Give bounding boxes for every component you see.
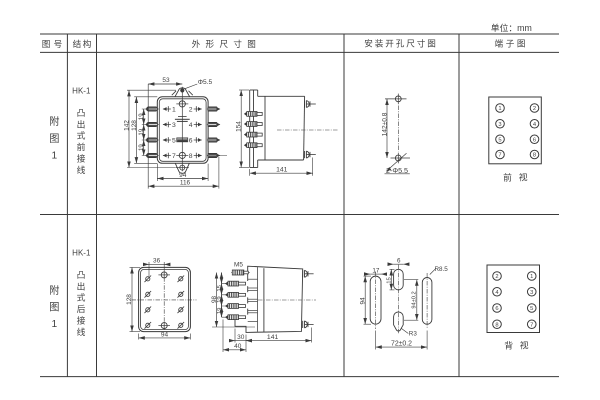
svg-text:后: 后 <box>77 304 86 314</box>
svg-text:安装开孔尺寸图: 安装开孔尺寸图 <box>364 38 437 49</box>
svg-text:接: 接 <box>77 315 86 326</box>
svg-text:凸: 凸 <box>77 270 86 280</box>
svg-text:142±0.8: 142±0.8 <box>381 112 388 136</box>
svg-text:94±0.2: 94±0.2 <box>412 291 418 308</box>
svg-text:1: 1 <box>498 106 501 112</box>
svg-text:3: 3 <box>172 122 176 129</box>
svg-text:前: 前 <box>77 141 86 152</box>
svg-text:17: 17 <box>372 267 380 274</box>
svg-text:154: 154 <box>235 121 242 132</box>
svg-text:接: 接 <box>77 153 86 164</box>
svg-text:式: 式 <box>77 292 86 303</box>
svg-text:6: 6 <box>533 137 536 143</box>
svg-text:Φ5.5: Φ5.5 <box>198 79 213 86</box>
svg-text:背: 背 <box>504 340 513 351</box>
svg-text:1: 1 <box>51 319 57 330</box>
svg-text:3: 3 <box>530 290 533 296</box>
svg-text:7: 7 <box>498 153 501 159</box>
svg-text:视: 视 <box>520 340 529 351</box>
svg-text:36: 36 <box>153 258 161 265</box>
svg-text:图: 图 <box>49 133 59 145</box>
svg-text:附: 附 <box>49 115 59 128</box>
svg-text:1: 1 <box>172 106 176 113</box>
svg-text:出: 出 <box>77 281 86 292</box>
svg-text:7: 7 <box>530 322 533 328</box>
svg-text:外形尺寸图: 外形尺寸图 <box>192 38 261 49</box>
svg-text:94: 94 <box>359 297 366 305</box>
svg-text:5: 5 <box>530 306 533 312</box>
svg-text:图号: 图号 <box>42 39 66 49</box>
svg-text:5: 5 <box>498 137 501 143</box>
svg-text:前: 前 <box>503 172 512 183</box>
svg-text:40: 40 <box>234 343 242 350</box>
svg-text:1: 1 <box>51 150 57 161</box>
svg-text:单位：mm: 单位：mm <box>491 22 532 33</box>
svg-text:5: 5 <box>172 137 176 144</box>
svg-text:15: 15 <box>387 277 393 284</box>
svg-text:端子图: 端子图 <box>495 38 529 49</box>
svg-text:4: 4 <box>189 122 193 129</box>
svg-text:141: 141 <box>276 167 288 174</box>
svg-text:凸: 凸 <box>77 108 86 118</box>
svg-text:128: 128 <box>126 294 133 305</box>
svg-text:7: 7 <box>172 153 176 160</box>
svg-text:HK-1: HK-1 <box>72 248 91 257</box>
svg-text:图: 图 <box>49 302 59 314</box>
svg-text:2: 2 <box>533 106 536 112</box>
svg-text:53: 53 <box>162 77 170 84</box>
svg-text:72±0.2: 72±0.2 <box>391 340 412 347</box>
svg-text:8: 8 <box>533 153 536 159</box>
svg-text:128: 128 <box>131 120 138 131</box>
svg-text:线: 线 <box>77 164 86 175</box>
svg-text:M5: M5 <box>234 262 243 269</box>
svg-text:94: 94 <box>179 172 187 179</box>
svg-text:R8.5: R8.5 <box>435 266 449 273</box>
svg-text:6: 6 <box>189 137 193 144</box>
svg-text:HK-1: HK-1 <box>72 86 91 95</box>
svg-text:6: 6 <box>495 306 498 312</box>
svg-text:30: 30 <box>237 334 245 341</box>
svg-text:结构: 结构 <box>73 38 93 49</box>
svg-text:6: 6 <box>397 258 401 265</box>
svg-text:94: 94 <box>161 332 169 339</box>
svg-text:19: 19 <box>217 308 223 315</box>
svg-text:19: 19 <box>138 113 145 120</box>
svg-text:R3: R3 <box>409 330 418 337</box>
svg-text:116: 116 <box>180 180 191 187</box>
svg-text:式: 式 <box>77 130 86 141</box>
svg-text:19: 19 <box>138 128 145 135</box>
svg-text:视: 视 <box>519 172 528 183</box>
svg-text:19: 19 <box>138 144 145 151</box>
svg-text:2: 2 <box>495 274 498 280</box>
svg-text:8: 8 <box>189 153 193 160</box>
svg-text:141: 141 <box>267 334 279 341</box>
svg-text:附: 附 <box>49 284 59 297</box>
svg-text:3: 3 <box>498 122 501 128</box>
svg-text:2: 2 <box>189 106 193 113</box>
svg-text:出: 出 <box>77 119 86 130</box>
svg-text:线: 线 <box>77 326 86 337</box>
svg-text:8: 8 <box>495 322 498 328</box>
svg-text:19: 19 <box>217 296 223 303</box>
svg-text:142: 142 <box>123 120 130 131</box>
svg-text:1: 1 <box>530 274 533 280</box>
svg-text:15: 15 <box>217 284 223 291</box>
